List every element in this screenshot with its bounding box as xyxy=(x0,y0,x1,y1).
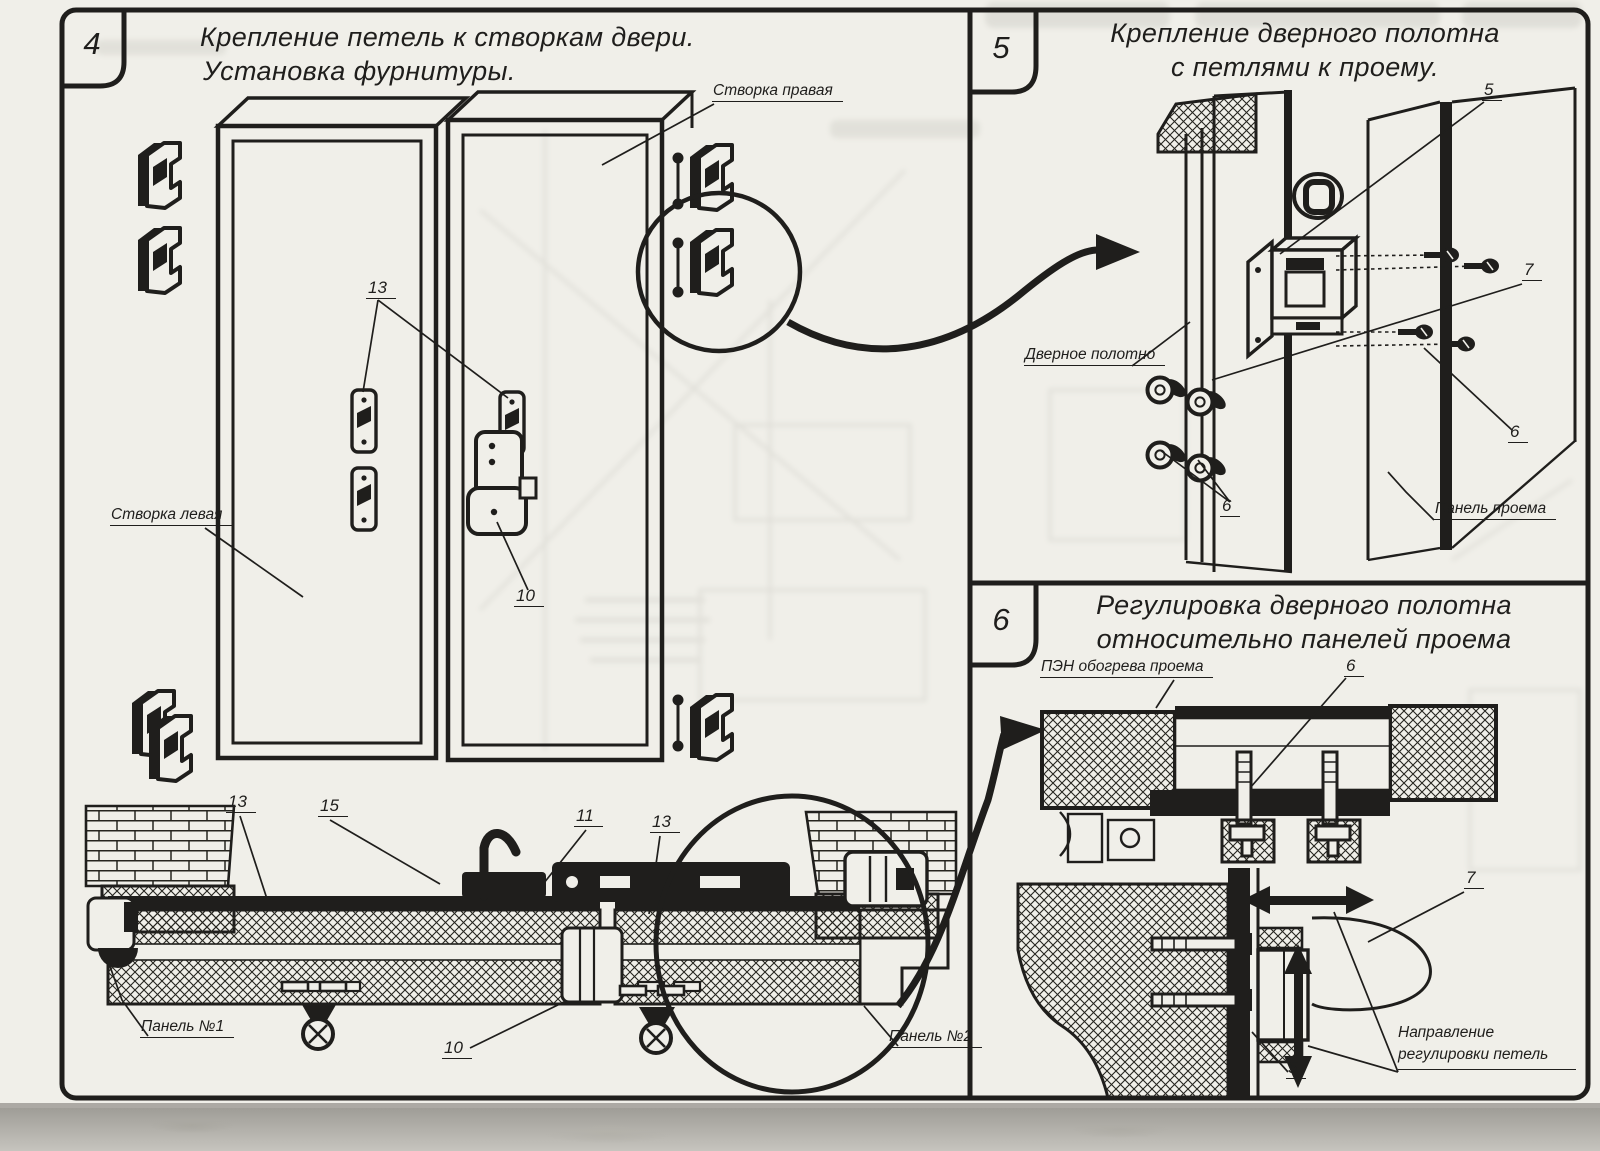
panel4-title-line1: Крепление петель к створкам двери. xyxy=(200,22,695,53)
callout-13-section-right: 13 xyxy=(650,812,680,833)
label-opening-panel: Панель проема xyxy=(1434,500,1556,520)
callout-7-screws: 7 xyxy=(1522,260,1542,281)
callout-10-lock: 10 xyxy=(514,586,544,607)
panel6-title-line2: относительно панелей проема xyxy=(1044,624,1564,655)
panel6-number: 6 xyxy=(968,602,1034,638)
callout-7-loop: 7 xyxy=(1464,868,1484,889)
callout-13-hinge-plates: 13 xyxy=(366,278,396,299)
callout-10-support: 10 xyxy=(442,1038,472,1059)
callout-5-hinge-section: 5 xyxy=(1286,1058,1306,1079)
callout-15-handle: 15 xyxy=(318,796,348,817)
callout-6-screw-heads: 6 xyxy=(1220,496,1240,517)
label-panel-no1: Панель №1 xyxy=(140,1018,234,1038)
callout-5-hinge: 5 xyxy=(1482,80,1502,101)
scanned-instruction-sheet: 4 5 6 Крепление петель к створкам двери.… xyxy=(0,0,1600,1151)
callout-11-lock-section: 11 xyxy=(574,806,603,827)
label-leaf-right: Створка правая xyxy=(712,82,843,102)
scanner-background xyxy=(0,1108,1600,1151)
callout-6-bolt: 6 xyxy=(1344,656,1364,677)
label-heater: ПЭН обогрева проема xyxy=(1040,658,1213,678)
label-door-leaf: Дверное полотно xyxy=(1024,346,1165,366)
label-layer: 4 5 6 Крепление петель к створкам двери.… xyxy=(0,0,1600,1151)
panel4-title-line2: Установка фурнитуры. xyxy=(203,56,516,87)
label-panel-no2: Панель №2 xyxy=(888,1028,982,1048)
panel5-title-line1: Крепление дверного полотна xyxy=(1060,18,1550,49)
panel5-title-line2: с петлями к проему. xyxy=(1060,52,1550,83)
label-leaf-left: Створка левая xyxy=(110,506,232,526)
panel6-title-line1: Регулировка дверного полотна xyxy=(1044,590,1564,621)
callout-13-section-left: 13 xyxy=(226,792,256,813)
callout-6-right: 6 xyxy=(1508,422,1528,443)
panel4-number: 4 xyxy=(62,26,122,62)
panel5-number: 5 xyxy=(968,30,1034,66)
label-adjust-direction: Направление регулировки петель xyxy=(1398,1022,1576,1070)
